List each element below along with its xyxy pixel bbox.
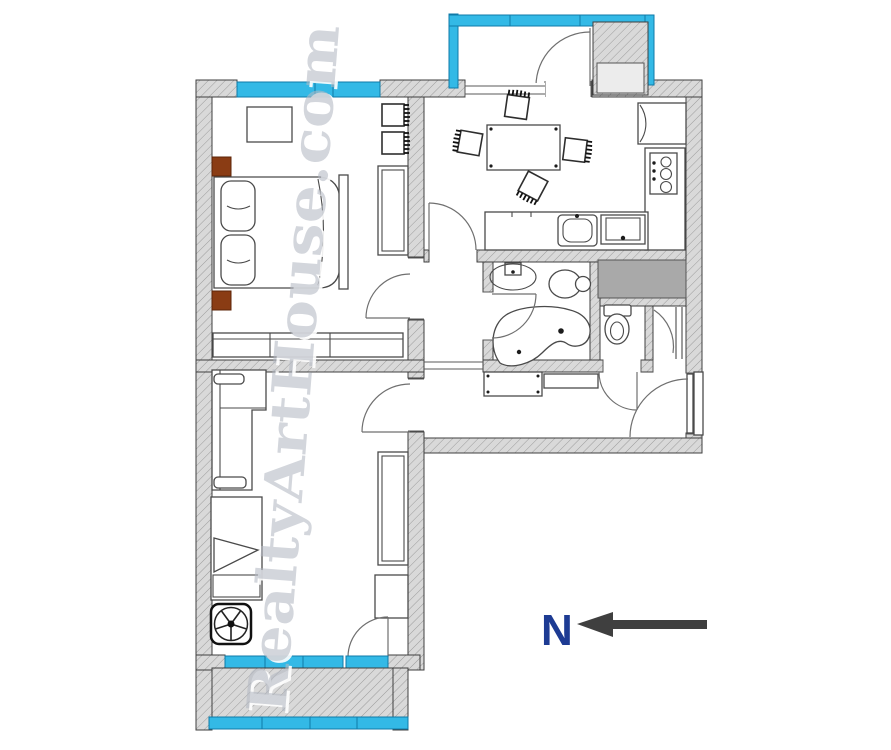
bedroom-chair-2 bbox=[382, 132, 410, 154]
living-room-door bbox=[362, 379, 424, 432]
bedroom-wardrobe-right bbox=[378, 166, 408, 255]
floor-plan-page: RealtyArtHouse.com RealtyArtHouse.com N bbox=[0, 0, 891, 750]
balcony-railing bbox=[209, 717, 408, 729]
bathroom bbox=[483, 263, 591, 366]
floor-plan: RealtyArtHouse.com RealtyArtHouse.com N bbox=[0, 0, 891, 750]
wc-door bbox=[599, 360, 641, 410]
dining-chair-4 bbox=[515, 171, 548, 206]
kitchen bbox=[429, 89, 686, 250]
balcony-door-2 bbox=[348, 617, 388, 657]
bidet bbox=[549, 270, 591, 298]
toilet bbox=[604, 305, 631, 344]
washbasin bbox=[490, 263, 536, 290]
kitchen-door bbox=[429, 203, 476, 250]
desk bbox=[375, 575, 408, 618]
entrance-door bbox=[630, 372, 703, 437]
hallway-bench bbox=[484, 372, 542, 396]
kitchen-window-sill bbox=[465, 83, 545, 97]
closet bbox=[653, 307, 682, 372]
compass: N bbox=[541, 606, 707, 655]
bedroom-chair-1 bbox=[382, 104, 410, 126]
living-room-wardrobe bbox=[378, 452, 408, 565]
wc bbox=[599, 305, 641, 410]
hallway bbox=[424, 362, 703, 437]
north-arrow bbox=[577, 612, 707, 637]
bathtub bbox=[493, 307, 590, 366]
kitchen-sink bbox=[558, 214, 597, 246]
dining-chair-3 bbox=[563, 138, 593, 163]
balcony-top bbox=[449, 14, 654, 97]
hallway-shelf bbox=[544, 374, 598, 388]
oven bbox=[601, 215, 645, 244]
fridge bbox=[638, 103, 686, 144]
dining-table bbox=[487, 125, 560, 170]
stove bbox=[650, 153, 677, 194]
bedroom-door bbox=[366, 258, 424, 319]
dining-chair-2 bbox=[451, 129, 482, 156]
bedside-unit-2 bbox=[212, 291, 231, 310]
vent-shaft bbox=[598, 260, 686, 298]
north-label: N bbox=[541, 606, 573, 655]
bedside-unit-1 bbox=[212, 157, 231, 176]
